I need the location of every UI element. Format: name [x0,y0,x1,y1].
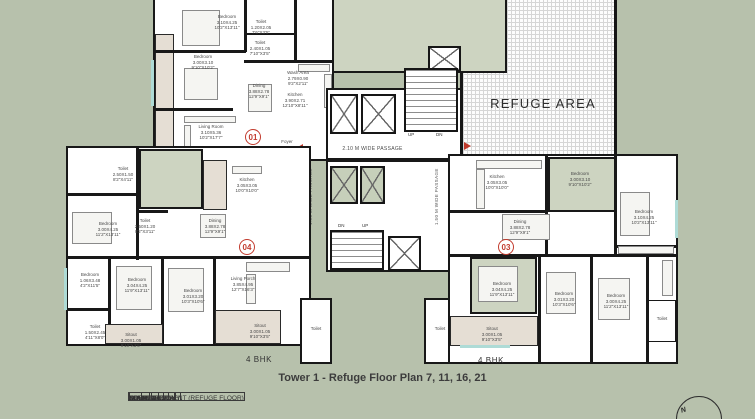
room-label-toilet: Toilet 2.50X1.50 8'2"X4'11" [100,166,146,183]
passage-label-right: 1.50 M WIDE PASSAGE [434,163,439,225]
window-accent [675,200,678,238]
room-label-toilet: Toilet 2.50X1.20 8'2"X3'11" [122,218,168,235]
wall [244,60,334,63]
room-label-dining: Dining 3.88X2.78 12'9"X9'1" [497,219,543,236]
room-label-bedroom: Bedroom 3.00X3.10 9'10"X10'2" [180,54,226,71]
wall [136,210,168,213]
stair-dn-label: DN [436,132,443,137]
lift-shaft [388,236,421,271]
refuge-area-label: REFUGE AREA [478,96,608,111]
room-label-bedroom: Bedroom 3.01X3.20 10'3"X10'6" [541,291,587,308]
wall [448,254,678,257]
room-label-bedroom: Bedroom 3.00X3.10 9'10"X10'2" [557,171,603,188]
room-label-toilet: Toilet [293,326,339,332]
wall [66,256,311,259]
wall [66,308,110,311]
stair-dn-label: DN [338,223,345,228]
wall [136,146,139,260]
room-label-sitout: Sitout 3.00X1.05 9'10"X3'5" [237,323,283,340]
room-label-bedroom: Bedroom 3.04X4.25 11'9"X13'11" [114,277,160,294]
lift-shaft [360,166,385,204]
lift-shaft [330,94,358,134]
wall [66,193,138,196]
bed-icon [184,68,218,100]
lift-shaft [330,166,358,204]
floor-plan-page: REFUGE AREA Bedroom 3.10X4.25 10'2"X13'1… [0,0,755,419]
passage-label-main: 2.10 M WIDE PASSAGE [330,146,415,152]
bhk-label-right: 4 BHK [468,356,514,365]
duct-court [139,149,203,209]
room-label-sitout: Sitout 3.00X1.05 9'10"X3'5" [469,326,515,343]
wall [614,154,617,257]
room-label-dining: Dining 3.88X2.78 12'9"X9'1" [236,83,282,100]
entry-arrow-icon [464,142,471,150]
window-accent [151,60,154,106]
stair-up-label: UP [408,132,414,137]
sofa-icon [184,116,236,123]
room-label-bedroom: Bedroom 3.10X4.25 10'2"X13'11" [621,209,667,226]
room-label-toilet: Toilet 2.40X1.05 7'10"X3'5" [237,40,283,57]
wall [545,154,548,257]
room-label-dining: Dining 3.88X2.78 12'9"X9'1" [192,218,238,235]
window-accent [460,345,510,348]
sofa-icon [246,262,290,272]
unit-03-marker: 03 [498,239,514,255]
bhk-label-left: 4 BHK [236,355,282,364]
room-label-toilet: Toilet [639,316,685,322]
staircase [330,230,384,270]
window-accent [64,268,67,310]
wardrobe-icon [662,260,673,296]
room-label-living: Living Room 3.10X5.36 10'2"X17'7" [188,124,234,141]
subcol-sqft: SQ. FT. [128,392,152,401]
unit-04-marker: 04 [239,239,255,255]
wall [153,108,233,111]
unit-01-marker: 01 [245,129,261,145]
wall [294,0,297,60]
lift-shaft [361,94,396,134]
kitchen-counter-icon [232,166,262,174]
kitchen-counter-icon [476,160,542,169]
wall [538,254,541,364]
staircase [404,68,458,132]
room-label-living-porch: Living Porch 3.85X4.95 12'7"X16'3" [220,276,266,293]
stair-up-label: UP [362,223,368,228]
room-label-bedroom: Bedroom 3.01X3.20 10'3"X10'6" [170,288,216,305]
room-label-kitchen: Kitchen 3.05X3.05 10'0"X10'0" [474,174,520,191]
wall [153,50,246,53]
wall [448,210,545,213]
terrace-area [328,0,507,73]
room-label-bedroom: Bedroom 1.06X3.48 4'2"X11'5" [67,272,113,289]
room-label-bedroom: Bedroom 3.00X4.25 11'2"X13'11" [593,293,639,310]
wardrobe-icon [618,246,674,254]
room-label-kitchen: Kitchen 3.05X3.05 10'0"X10'0" [224,177,270,194]
room-label-bedroom: Bedroom 3.04X4.25 11'9"X13'11" [479,281,525,298]
page-title: Tower 1 - Refuge Floor Plan 7, 11, 16, 2… [128,372,637,384]
room-label-toilet: Toilet 1.20X2.05 7'6"X3'5" [238,19,284,36]
room-label-sitout: Sitout 3.00X1.05 9'10"X3'5" [108,332,154,349]
